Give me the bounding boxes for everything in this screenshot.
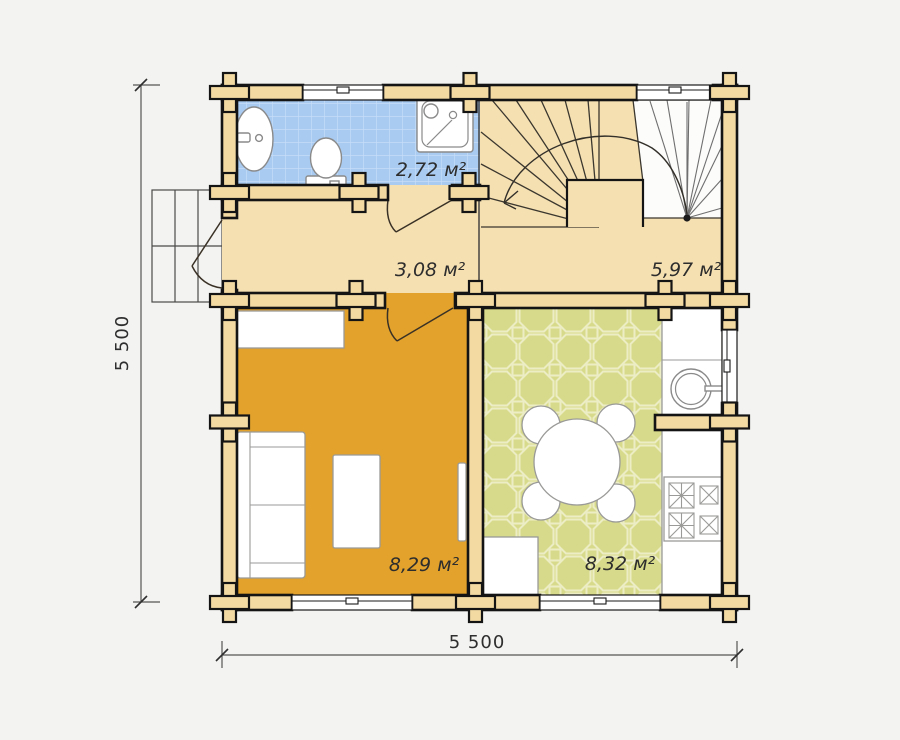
log-joint — [210, 86, 249, 99]
window — [292, 595, 412, 610]
entrance-door-gap — [222, 218, 237, 290]
log-joint — [337, 294, 376, 307]
kitchen-counter — [662, 308, 722, 595]
log-joint — [450, 186, 489, 199]
coffee-table — [333, 455, 380, 548]
floor-plan-page: 5 500 5 500 — [0, 0, 900, 740]
bathroom-sink — [235, 107, 273, 171]
stair-landing-block — [567, 180, 643, 227]
fridge — [482, 537, 538, 595]
cabinet — [237, 311, 344, 348]
log-joint — [710, 294, 749, 307]
left-dimension: 5 500 — [112, 79, 160, 608]
log-joint — [210, 596, 249, 609]
dimension-label-height: 5 500 — [112, 315, 133, 372]
room-area-label-stair-hall: 5,97 м² — [651, 259, 722, 281]
window — [637, 85, 713, 100]
stove — [664, 477, 722, 541]
dimension-label-width: 5 500 — [449, 632, 506, 653]
log-joint — [456, 294, 495, 307]
log-joint — [210, 186, 249, 199]
log-joint — [710, 416, 749, 429]
dining-table — [522, 404, 635, 522]
log-joint — [710, 596, 749, 609]
sofa — [237, 432, 305, 578]
window — [540, 595, 660, 610]
log-joint — [451, 86, 490, 99]
window — [722, 330, 737, 403]
room-area-label-kitchen: 8,32 м² — [585, 553, 656, 575]
entrance-door-swing — [192, 220, 222, 288]
room-area-label-living-room: 8,29 м² — [389, 554, 460, 576]
room-area-label-bathroom: 2,72 м² — [396, 159, 467, 181]
log-joint — [456, 596, 495, 609]
log-joint — [340, 186, 379, 199]
window — [303, 85, 383, 100]
room-area-label-hallway: 3,08 м² — [395, 259, 466, 281]
log-joint — [210, 294, 249, 307]
log-joint — [710, 86, 749, 99]
log-joint — [646, 294, 685, 307]
bathroom-door-gap — [388, 185, 452, 200]
log-joint — [210, 416, 249, 429]
living-door-gap — [385, 293, 455, 308]
bottom-dimension: 5 500 — [216, 632, 743, 668]
floor-plan-svg: 5 500 5 500 — [0, 0, 900, 740]
